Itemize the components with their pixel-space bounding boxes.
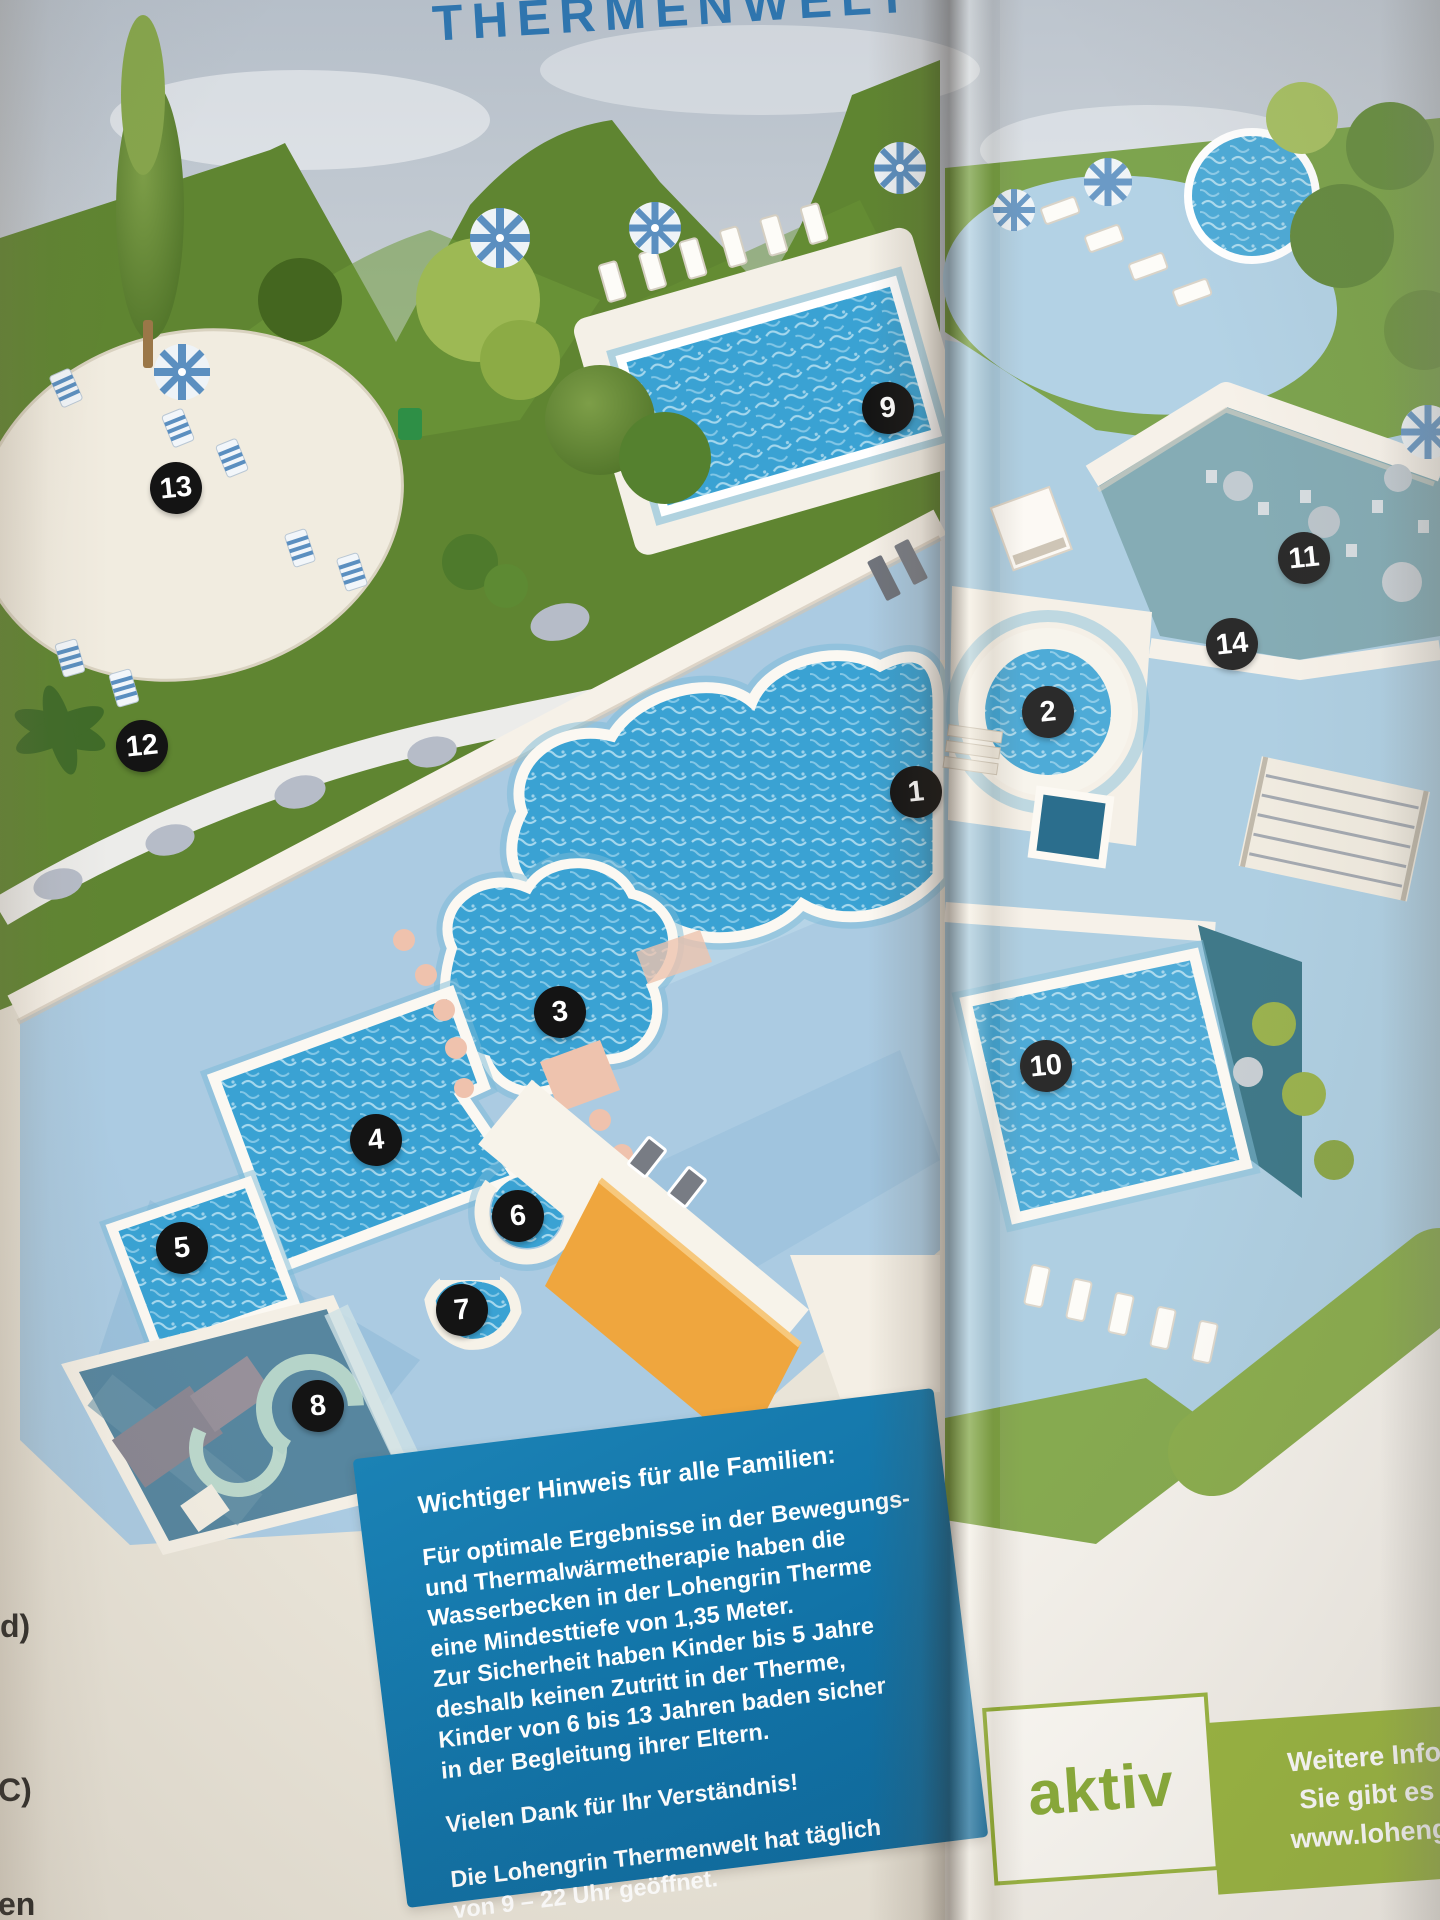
aktiv-label: aktiv bbox=[1026, 1748, 1177, 1829]
brochure-photo: THERMENWELT 1234567891011121314 Wichtige… bbox=[0, 0, 1440, 1920]
legend-fragment: ) bbox=[0, 1658, 1, 1695]
legend-fragment: C) bbox=[0, 1772, 32, 1809]
family-notice-box: Wichtiger Hinweis für alle Familien: Für… bbox=[353, 1388, 989, 1908]
aktiv-logo-box: aktiv bbox=[982, 1692, 1220, 1885]
legend-fragment: d) bbox=[0, 1608, 30, 1645]
info-band: Weitere Info Sie gibt es www.loheng bbox=[1206, 1701, 1440, 1894]
notice-body: Für optimale Ergebnisse in der Bewegungs… bbox=[421, 1481, 948, 1787]
legend-fragment: en bbox=[0, 1886, 35, 1920]
